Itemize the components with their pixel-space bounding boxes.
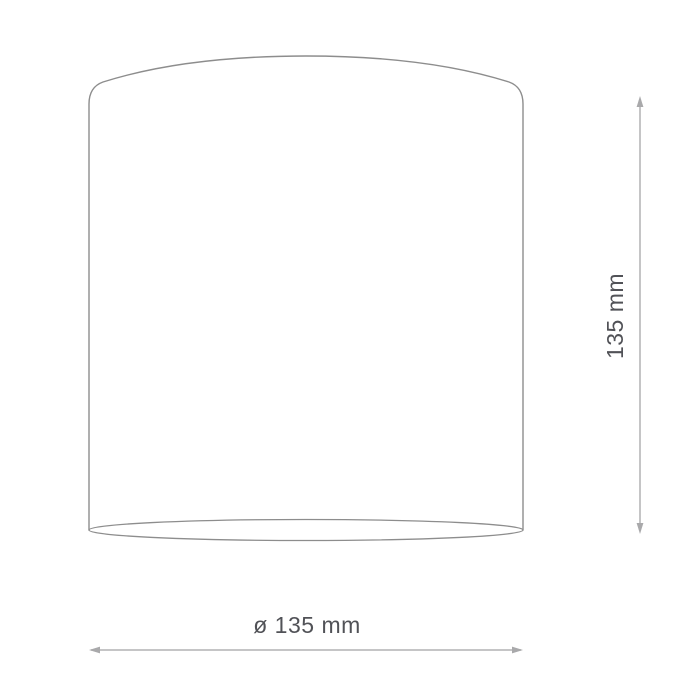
cylinder-bottom-rim	[89, 520, 523, 541]
cylinder-outline	[89, 56, 523, 530]
cylinder-drawing	[0, 0, 700, 700]
height-dimension-label: 135 mm	[602, 256, 628, 376]
height-arrow-top-icon	[637, 96, 644, 107]
diameter-arrow-right-icon	[512, 647, 523, 654]
diameter-arrow-left-icon	[89, 647, 100, 654]
diameter-dimension-label: ø 135 mm	[222, 612, 392, 638]
height-arrow-bottom-icon	[637, 523, 644, 534]
dimension-diagram: ø 135 mm 135 mm	[0, 0, 700, 700]
